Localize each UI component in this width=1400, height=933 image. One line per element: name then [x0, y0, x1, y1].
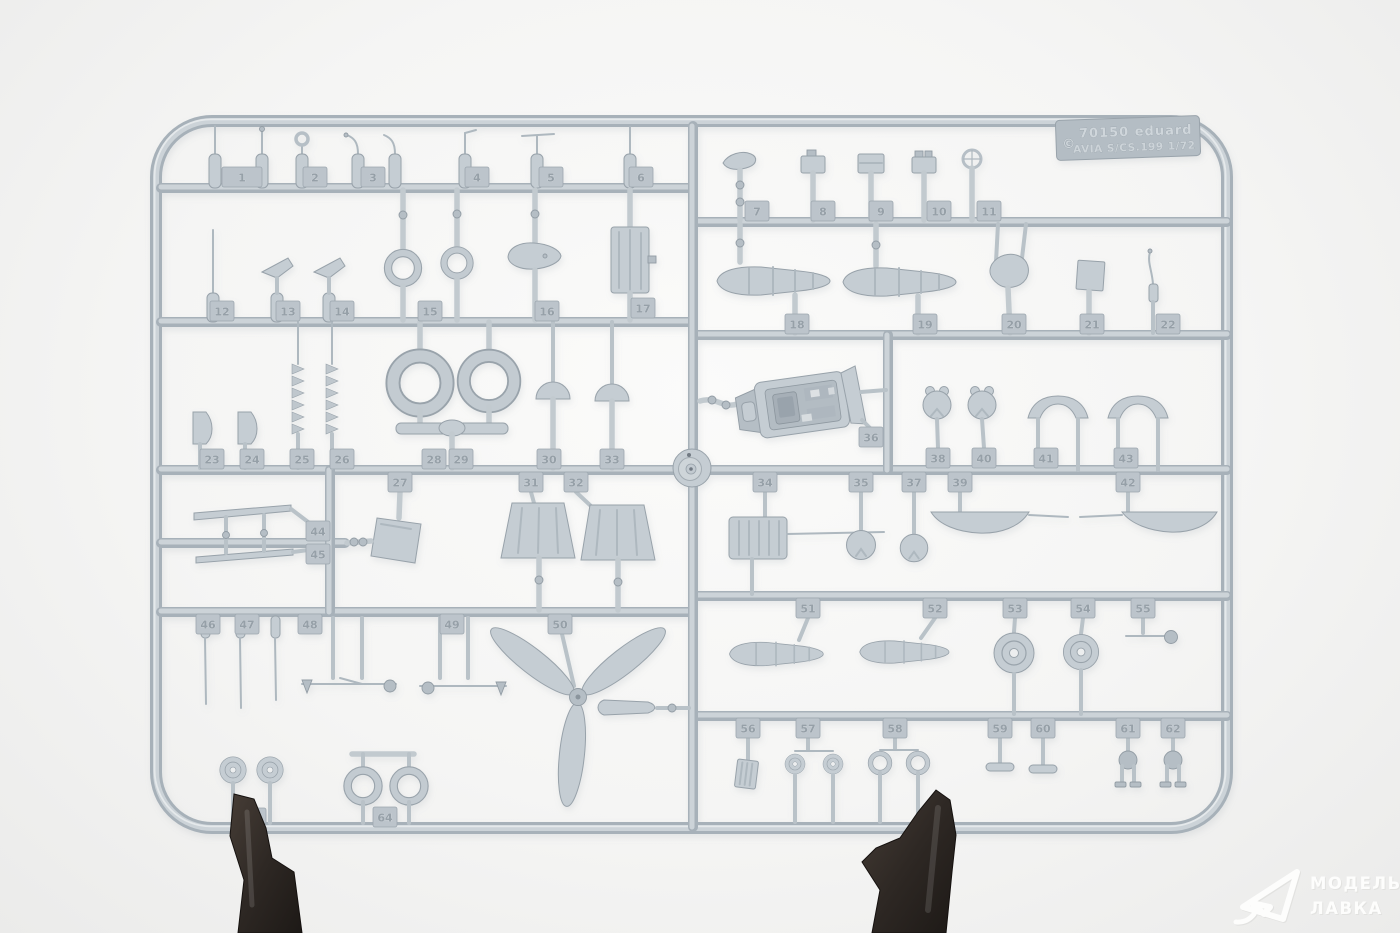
tab-40: 40 [972, 448, 996, 468]
tab-28: 28 [422, 449, 446, 469]
tab-3: 3 [361, 167, 385, 187]
tab-13: 13 [276, 301, 300, 321]
svg-text:7: 7 [753, 206, 761, 219]
svg-text:31: 31 [523, 477, 538, 490]
tab-16: 16 [535, 301, 559, 321]
svg-text:18: 18 [789, 319, 804, 332]
tab-38: 38 [926, 448, 950, 468]
tab-4: 4 [465, 167, 489, 187]
part-33-dome [595, 322, 629, 468]
tab-48: 48 [298, 614, 322, 634]
part-51-bomb [730, 618, 824, 666]
tab-50: 50 [548, 614, 572, 634]
tab-25: 25 [290, 449, 314, 469]
svg-text:12: 12 [214, 306, 229, 319]
tab-39: 39 [948, 472, 972, 492]
tab-61: 61 [1116, 718, 1140, 738]
tab-29: 29 [449, 449, 473, 469]
tab-54: 54 [1071, 598, 1095, 618]
part-56-block [734, 738, 758, 789]
svg-text:16: 16 [539, 306, 555, 319]
part-62-gear [1160, 738, 1186, 787]
svg-text:52: 52 [927, 603, 942, 616]
tab-51: 51 [796, 598, 820, 618]
tab-22: 22 [1156, 314, 1180, 334]
tab-24: 24 [240, 449, 264, 469]
tab-62: 62 [1161, 718, 1185, 738]
svg-text:20: 20 [1006, 319, 1022, 332]
spinner-cone [598, 700, 689, 715]
label-plate: © 70150 eduard AVIA S/CS.199 1/72 [1055, 115, 1200, 160]
tab-53: 53 [1003, 598, 1027, 618]
svg-text:39: 39 [952, 477, 967, 490]
svg-text:27: 27 [392, 477, 407, 490]
tab-64: 64 [373, 807, 397, 827]
part-39-hull [931, 492, 1068, 533]
svg-text:1: 1 [238, 172, 246, 185]
tab-34: 34 [753, 472, 777, 492]
tab-6: 6 [629, 167, 653, 187]
tab-19: 19 [913, 314, 937, 334]
svg-text:11: 11 [981, 206, 996, 219]
svg-text:42: 42 [1120, 477, 1135, 490]
svg-text:15: 15 [422, 306, 437, 319]
svg-text:61: 61 [1120, 723, 1135, 736]
part-44-45-strips [194, 505, 316, 563]
part-37-cup [900, 492, 928, 562]
sprue-photo: 1 2 3 4 5 6 7 8 9 10 11 12 13 14 15 16 1… [0, 0, 1400, 933]
svg-text:33: 33 [604, 454, 619, 467]
svg-text:49: 49 [444, 619, 459, 632]
part-18-drop-tank [717, 267, 830, 333]
part-30-dome [536, 322, 570, 468]
tab-30: 30 [537, 449, 561, 469]
svg-text:50: 50 [552, 619, 568, 632]
svg-text:60: 60 [1035, 723, 1051, 736]
svg-text:34: 34 [757, 477, 773, 490]
tab-33: 33 [600, 449, 624, 469]
svg-text:59: 59 [992, 723, 1007, 736]
tab-58: 58 [883, 718, 907, 738]
part-27-scoop [347, 492, 421, 563]
svg-text:32: 32 [568, 477, 583, 490]
tab-15: 15 [418, 301, 442, 321]
svg-text:10: 10 [931, 206, 947, 219]
tab-18: 18 [785, 314, 809, 334]
tab-43: 43 [1114, 448, 1138, 468]
tab-60: 60 [1031, 718, 1055, 738]
part-57-wheels [785, 738, 843, 822]
part-52-bomb [860, 618, 949, 663]
part-61-gear [1115, 738, 1141, 787]
svg-text:9: 9 [877, 206, 885, 219]
tab-10: 10 [927, 201, 951, 221]
svg-text:36: 36 [863, 432, 879, 445]
part-53-wheel [994, 618, 1034, 714]
watermark: МОДЕЛЬНАЯ МОДЕЛЬНАЯ ЛАВКА ЛАВКА [1236, 872, 1400, 923]
tab-59: 59 [988, 718, 1012, 738]
svg-text:43: 43 [1118, 453, 1133, 466]
tab-7: 7 [745, 201, 769, 221]
tab-42: 42 [1116, 472, 1140, 492]
part-54-wheel [1063, 618, 1098, 714]
svg-text:25: 25 [294, 454, 309, 467]
svg-text:55: 55 [1135, 603, 1150, 616]
svg-text:37: 37 [906, 477, 921, 490]
svg-text:3: 3 [369, 172, 377, 185]
part-35-cup [847, 492, 876, 560]
tab-49: 49 [440, 614, 464, 634]
svg-text:45: 45 [310, 549, 325, 562]
part-55-rod [1126, 618, 1178, 644]
svg-text:35: 35 [853, 477, 868, 490]
svg-text:28: 28 [426, 454, 441, 467]
tab-35: 35 [849, 472, 873, 492]
tab-8: 8 [811, 201, 835, 221]
svg-text:58: 58 [887, 723, 902, 736]
part-15-rings [384, 190, 473, 320]
sprue-scene: 1 2 3 4 5 6 7 8 9 10 11 12 13 14 15 16 1… [0, 0, 1400, 933]
clamp-right [862, 790, 956, 933]
part-16-pod [508, 190, 561, 320]
part-spinner-backplate [673, 449, 711, 487]
tab-17: 17 [631, 298, 655, 318]
part-19-drop-tank [843, 268, 956, 333]
part-38-bulge [923, 387, 951, 449]
part-40-bulge [968, 387, 996, 449]
tab-45: 45 [306, 544, 330, 564]
svg-text:13: 13 [280, 306, 295, 319]
tab-46: 46 [196, 614, 220, 634]
tab-44: 44 [306, 521, 330, 541]
svg-text:38: 38 [930, 453, 945, 466]
tab-55: 55 [1131, 598, 1155, 618]
tab-9: 9 [869, 201, 893, 221]
svg-text:5: 5 [547, 172, 555, 185]
gates-right-upper [736, 224, 880, 266]
part-36-cockpit [700, 366, 886, 442]
svg-text:44: 44 [310, 526, 326, 539]
part-26-exhaust [326, 322, 338, 468]
tab-23: 23 [200, 449, 224, 469]
tab-37: 37 [902, 472, 926, 492]
tab-36: 36 [859, 427, 883, 447]
svg-text:21: 21 [1084, 319, 1099, 332]
parts-1-6-levers [209, 126, 636, 188]
tab-52: 52 [923, 598, 947, 618]
svg-text:48: 48 [302, 619, 317, 632]
svg-text:51: 51 [800, 603, 815, 616]
part-42-hull [1080, 492, 1217, 532]
tab-5: 5 [539, 167, 563, 187]
svg-text:64: 64 [377, 812, 393, 825]
tab-47: 47 [235, 614, 259, 634]
svg-text:8: 8 [819, 206, 827, 219]
svg-text:40: 40 [976, 453, 992, 466]
tab-2: 2 [303, 167, 327, 187]
tab-57: 57 [796, 718, 820, 738]
tab-12: 12 [210, 301, 234, 321]
watermark-line1: МОДЕЛЬНАЯ [1310, 874, 1400, 893]
svg-text:29: 29 [453, 454, 468, 467]
tab-41: 41 [1034, 448, 1058, 468]
part-31-panel [501, 492, 575, 610]
svg-text:47: 47 [239, 619, 254, 632]
svg-text:4: 4 [473, 172, 481, 185]
svg-text:2: 2 [311, 172, 319, 185]
part-60-strut [1029, 738, 1057, 773]
tab-56: 56 [736, 718, 760, 738]
tab-14: 14 [330, 301, 354, 321]
svg-text:54: 54 [1075, 603, 1091, 616]
watermark-line2: ЛАВКА [1310, 899, 1383, 918]
svg-text:30: 30 [541, 454, 557, 467]
svg-text:14: 14 [334, 306, 350, 319]
tab-21: 21 [1080, 314, 1104, 334]
part-28-29-gear-rings [386, 322, 520, 468]
part-59-strut [986, 738, 1014, 771]
part-25-exhaust [292, 322, 304, 468]
svg-text:56: 56 [740, 723, 756, 736]
svg-text:53: 53 [1007, 603, 1022, 616]
tab-26: 26 [330, 449, 354, 469]
svg-text:19: 19 [917, 319, 932, 332]
svg-text:62: 62 [1165, 723, 1180, 736]
svg-text:41: 41 [1038, 453, 1053, 466]
svg-text:22: 22 [1160, 319, 1175, 332]
svg-text:6: 6 [637, 172, 645, 185]
svg-text:46: 46 [200, 619, 216, 632]
svg-text:57: 57 [800, 723, 815, 736]
svg-text:26: 26 [334, 454, 350, 467]
tab-20: 20 [1002, 314, 1026, 334]
tab-11: 11 [977, 201, 1001, 221]
part-32-panel [576, 492, 655, 610]
tab-1: 1 [222, 167, 262, 187]
tab-27: 27 [388, 472, 412, 492]
svg-text:17: 17 [635, 303, 650, 316]
tab-32: 32 [564, 472, 588, 492]
svg-text:24: 24 [244, 454, 260, 467]
svg-text:23: 23 [204, 454, 219, 467]
tab-31: 31 [519, 472, 543, 492]
